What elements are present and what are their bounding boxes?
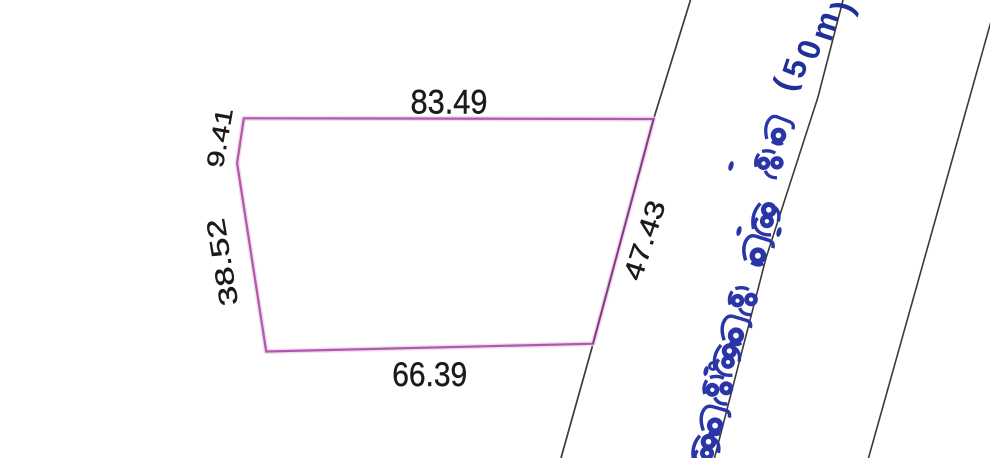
- svg-text:66.39: 66.39: [392, 356, 467, 394]
- svg-text:83.49: 83.49: [411, 84, 488, 122]
